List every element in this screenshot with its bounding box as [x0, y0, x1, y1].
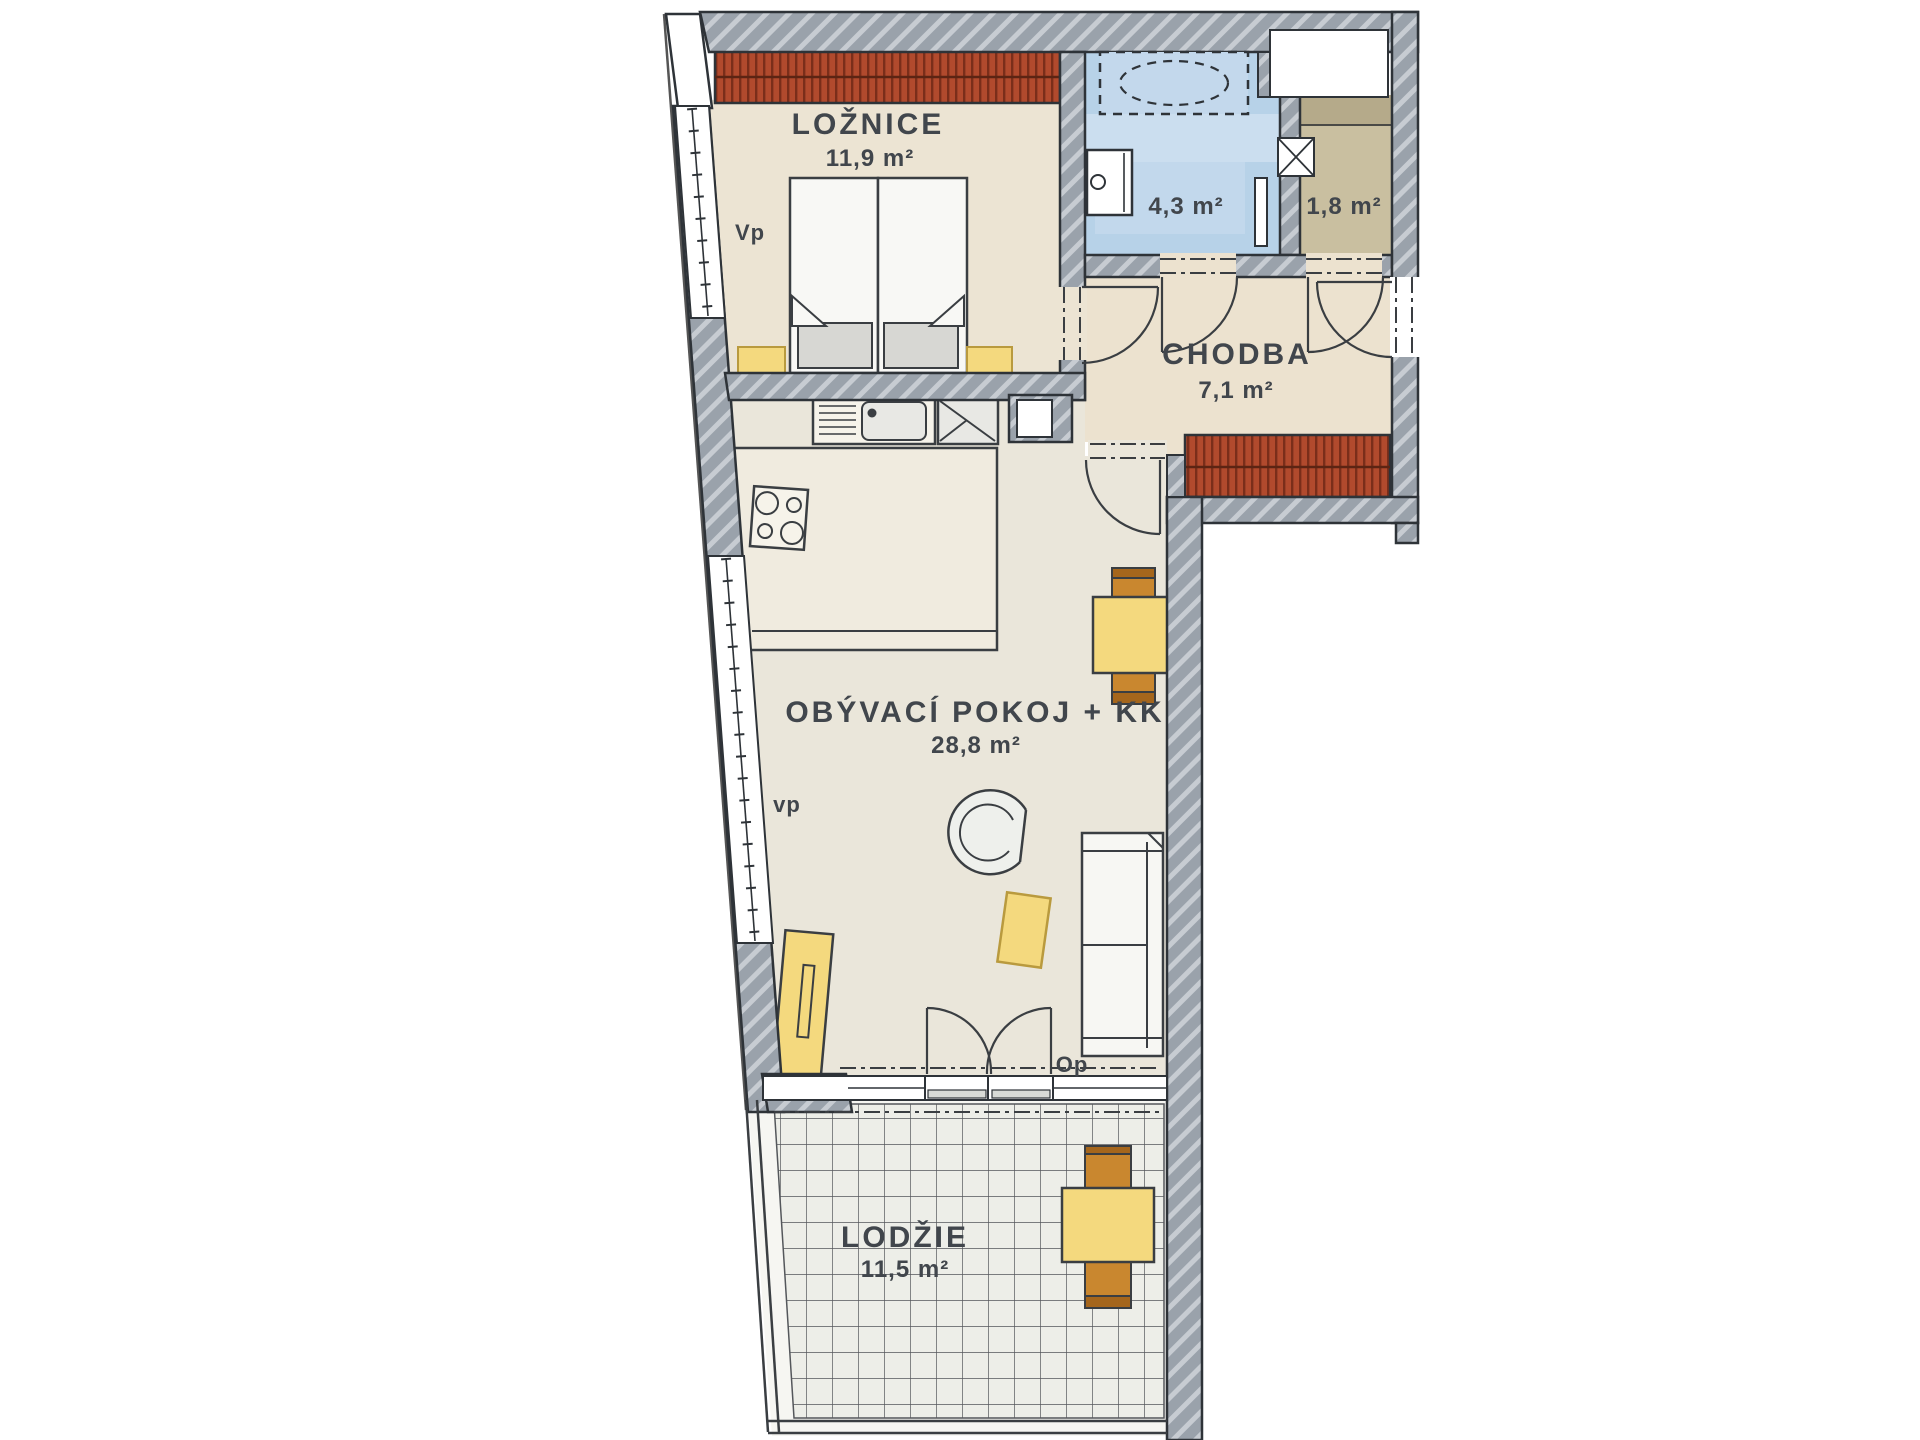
- wall-right: [1392, 12, 1418, 523]
- wall-stub-wardrobe: [1167, 455, 1185, 497]
- wall-east-loggia: [1167, 497, 1202, 1440]
- code-bedroom-window: Vp: [735, 220, 765, 245]
- opening-entrance-door: [1390, 277, 1420, 357]
- nightstand-right: [967, 347, 1012, 375]
- code-balcony-door: Op: [1056, 1052, 1089, 1077]
- bathtub: [1100, 52, 1248, 114]
- loggia-chair-bottom-back: [1085, 1296, 1131, 1308]
- loggia-chair-bottom: [1085, 1260, 1131, 1300]
- room-area-obyvaci: 28,8 m²: [931, 732, 1021, 759]
- bed-left: [790, 178, 878, 373]
- wall-chodba-south: [1167, 497, 1418, 523]
- room-area-lodzie: 11,5 m²: [861, 1256, 949, 1283]
- floor-plan-drawing: LOŽNICE 11,9 m² Vp 4,3 m² 1,8 m² CHODBA …: [0, 0, 1920, 1440]
- room-label-lodzie: LODŽIE: [841, 1220, 969, 1254]
- komora-shelf: [1300, 95, 1392, 125]
- wardrobe-chodba: [1185, 435, 1390, 497]
- balcony-wall-band: [763, 1076, 1167, 1100]
- sofa: [1082, 833, 1163, 1056]
- washing-machine: [1087, 150, 1132, 215]
- room-area-koupelna: 4,3 m²: [1148, 193, 1223, 220]
- stove: [750, 486, 808, 550]
- wall-step-se: [1396, 523, 1418, 543]
- code-living-window: vp: [773, 792, 801, 817]
- floor-plan-page: LOŽNICE 11,9 m² Vp 4,3 m² 1,8 m² CHODBA …: [0, 0, 1920, 1440]
- kitchen-sink: [813, 398, 935, 444]
- opening-komora-door: [1306, 253, 1382, 279]
- dishwasher: [938, 398, 998, 444]
- room-label-loznice: LOŽNICE: [792, 107, 945, 141]
- room-label-obyvaci: OBÝVACÍ POKOJ + KK: [785, 695, 1164, 729]
- kitchen-counter: [734, 448, 997, 650]
- coffee-table: [997, 892, 1050, 967]
- room-label-chodba: CHODBA: [1162, 338, 1312, 371]
- installation-shaft: [1278, 138, 1314, 176]
- room-area-loznice: 11,9 m²: [826, 145, 914, 172]
- armchair: [948, 790, 1026, 874]
- radiator: [1255, 178, 1267, 246]
- room-area-chodba: 7,1 m²: [1198, 377, 1273, 404]
- opening-bathroom-door: [1160, 253, 1236, 279]
- shaft-white-box: [1017, 400, 1052, 437]
- room-area-komora: 1,8 m²: [1306, 193, 1381, 220]
- bed-right: [878, 178, 967, 373]
- loggia-table: [1062, 1188, 1154, 1262]
- opening-bedroom-door: [1058, 287, 1087, 360]
- living-door-opening: [1088, 440, 1167, 458]
- dining-table: [1093, 597, 1170, 673]
- nightstand-left: [738, 347, 785, 375]
- wardrobe-bedroom: [715, 50, 1060, 103]
- entrance-niche: [1270, 30, 1388, 97]
